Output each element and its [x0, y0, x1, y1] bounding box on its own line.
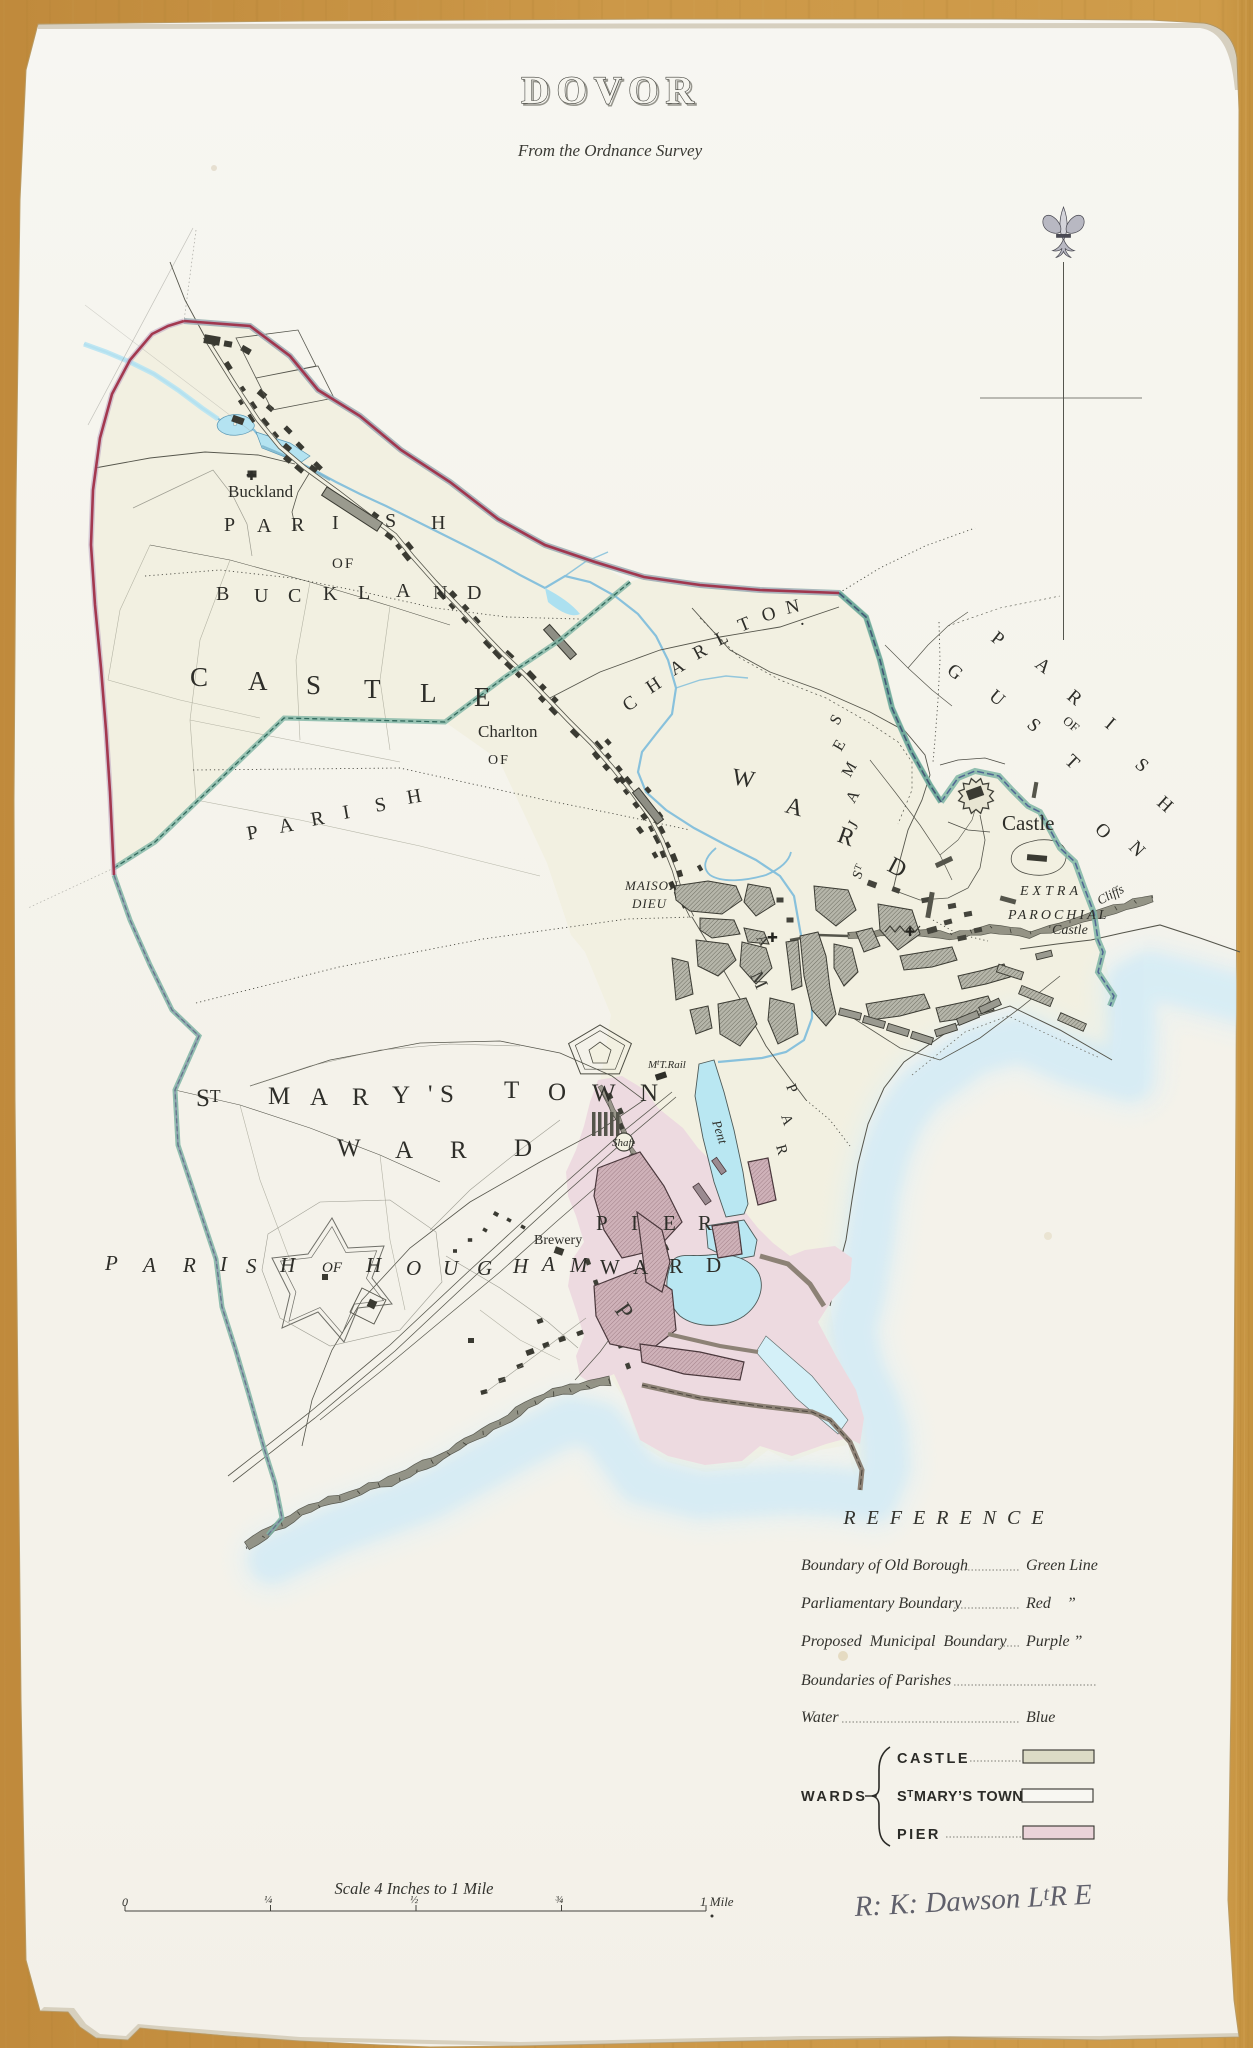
svg-text:O: O — [548, 1079, 566, 1106]
svg-text:WARDS: WARDS — [801, 1789, 867, 1805]
svg-text:MAISON: MAISON — [624, 878, 679, 893]
svg-text:': ' — [428, 1081, 433, 1108]
svg-text:A: A — [257, 515, 272, 537]
svg-text:A: A — [141, 1253, 156, 1277]
svg-text:R: R — [291, 514, 305, 536]
svg-text:DIEU: DIEU — [631, 896, 668, 911]
svg-text:D: D — [467, 582, 481, 604]
svg-text:OF: OF — [488, 753, 510, 768]
svg-text:0: 0 — [122, 1895, 128, 1909]
svg-text:C: C — [190, 662, 208, 692]
svg-text:Blue: Blue — [1026, 1709, 1055, 1726]
svg-text:S: S — [246, 1254, 257, 1278]
svg-text:¾: ¾ — [555, 1894, 563, 1906]
svg-text:CASTLE: CASTLE — [897, 1751, 970, 1767]
svg-text:OF: OF — [332, 556, 355, 572]
svg-text:D: D — [514, 1135, 532, 1162]
svg-text:PIER: PIER — [897, 1827, 941, 1843]
svg-text:D: D — [706, 1253, 721, 1277]
svg-text:OF: OF — [322, 1260, 343, 1276]
svg-text:W: W — [600, 1255, 620, 1279]
svg-text:MtT.Rail: MtT.Rail — [647, 1058, 686, 1071]
svg-text:Green Line: Green Line — [1026, 1557, 1098, 1574]
svg-text:R: R — [182, 1253, 196, 1277]
svg-text:Proposed Municipal Boundary: Proposed Municipal Boundary — [800, 1633, 1008, 1650]
svg-text:Boundary of Old Borough: Boundary of Old Borough — [801, 1557, 968, 1574]
svg-text:R: R — [450, 1137, 467, 1164]
svg-text:U: U — [254, 585, 269, 607]
svg-text:Brewery: Brewery — [534, 1233, 582, 1248]
svg-text:DOVOR: DOVOR — [521, 69, 700, 112]
svg-text:Purple ”: Purple ” — [1025, 1633, 1083, 1650]
svg-text:A: A — [395, 1137, 413, 1164]
svg-text:Castle: Castle — [1002, 811, 1055, 835]
svg-text:I: I — [631, 1211, 638, 1235]
svg-text:P: P — [104, 1251, 118, 1275]
svg-text:½: ½ — [410, 1894, 418, 1906]
svg-text:E: E — [663, 1211, 676, 1235]
svg-text:EXTRA: EXTRA — [1019, 884, 1082, 899]
svg-text:Boundaries of Parishes: Boundaries of Parishes — [801, 1672, 951, 1689]
svg-text:H: H — [365, 1253, 383, 1277]
svg-text:L: L — [358, 582, 370, 604]
svg-text:Charlton: Charlton — [478, 722, 538, 741]
svg-text:W: W — [337, 1135, 361, 1162]
svg-text:G: G — [477, 1256, 492, 1280]
svg-text:E: E — [474, 682, 491, 712]
svg-text:T: T — [364, 674, 381, 704]
svg-text:C: C — [288, 585, 301, 607]
svg-text:U: U — [443, 1256, 460, 1280]
svg-text:I: I — [332, 512, 339, 534]
svg-text:L: L — [420, 678, 437, 708]
svg-text:T: T — [504, 1077, 519, 1104]
svg-text:M: M — [268, 1083, 290, 1110]
svg-text:S: S — [440, 1081, 454, 1108]
svg-text:H: H — [279, 1253, 297, 1277]
svg-text:I: I — [219, 1252, 228, 1276]
svg-text:Y: Y — [392, 1082, 410, 1109]
svg-text:M: M — [569, 1253, 589, 1277]
svg-text:Buckland: Buckland — [228, 482, 294, 501]
svg-text:W: W — [592, 1080, 616, 1107]
svg-text:Castle: Castle — [1052, 923, 1088, 938]
svg-text:✚: ✚ — [905, 925, 915, 939]
svg-text:S: S — [306, 670, 321, 700]
svg-text:A: A — [633, 1255, 649, 1279]
svg-text:R: R — [669, 1254, 683, 1278]
svg-text:1 Mile: 1 Mile — [700, 1894, 734, 1909]
svg-text:REFERENCE: REFERENCE — [842, 1507, 1054, 1529]
svg-text:PAROCHIAL: PAROCHIAL — [1007, 908, 1109, 923]
svg-text:A: A — [396, 580, 411, 602]
svg-text:O: O — [406, 1256, 421, 1280]
svg-text:P: P — [596, 1211, 608, 1235]
svg-text:A: A — [248, 666, 268, 696]
svg-text:A: A — [540, 1252, 555, 1276]
svg-text:K: K — [323, 583, 338, 605]
svg-text:N: N — [640, 1080, 658, 1107]
svg-text:From the Ordnance Survey: From the Ordnance Survey — [517, 141, 703, 160]
svg-text:B: B — [216, 583, 229, 605]
svg-text:Parliamentary Boundary: Parliamentary Boundary — [800, 1595, 962, 1612]
svg-text:P: P — [224, 514, 235, 536]
svg-text:R: R — [352, 1084, 369, 1111]
svg-text:A: A — [310, 1084, 328, 1111]
svg-text:STMARY’S TOWN: STMARY’S TOWN — [897, 1789, 1023, 1805]
svg-text:Red ”: Red ” — [1025, 1595, 1076, 1612]
svg-text:Water: Water — [801, 1709, 839, 1726]
svg-text:✚: ✚ — [246, 468, 257, 483]
svg-text:R: R — [698, 1211, 712, 1235]
svg-text:S: S — [385, 510, 396, 532]
svg-text:H: H — [512, 1254, 530, 1278]
svg-text:Shaft: Shaft — [612, 1137, 636, 1149]
svg-text:¼: ¼ — [264, 1894, 272, 1906]
svg-text:H: H — [431, 512, 445, 534]
svg-text:.: . — [800, 609, 805, 630]
svg-text:N: N — [433, 582, 447, 604]
